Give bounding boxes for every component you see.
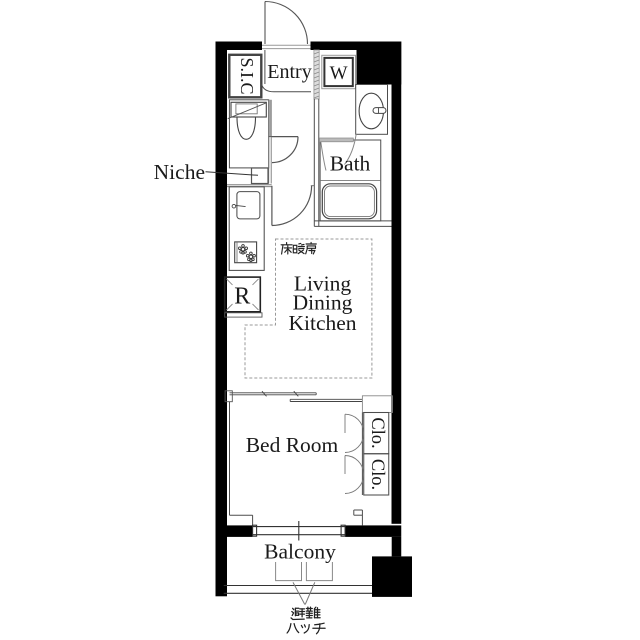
- svg-text:Kitchen: Kitchen: [288, 311, 356, 335]
- svg-text:Bath: Bath: [330, 151, 371, 175]
- svg-text:Clo.: Clo.: [367, 417, 387, 448]
- svg-text:Niche: Niche: [154, 160, 205, 184]
- svg-text:Entry: Entry: [267, 61, 311, 83]
- svg-text:Bed Room: Bed Room: [246, 433, 339, 457]
- svg-text:R: R: [234, 284, 250, 310]
- svg-text:W: W: [330, 63, 348, 84]
- svg-text:S.I.C: S.I.C: [237, 57, 257, 94]
- svg-text:Balcony: Balcony: [264, 540, 336, 564]
- svg-text:Clo.: Clo.: [367, 459, 387, 490]
